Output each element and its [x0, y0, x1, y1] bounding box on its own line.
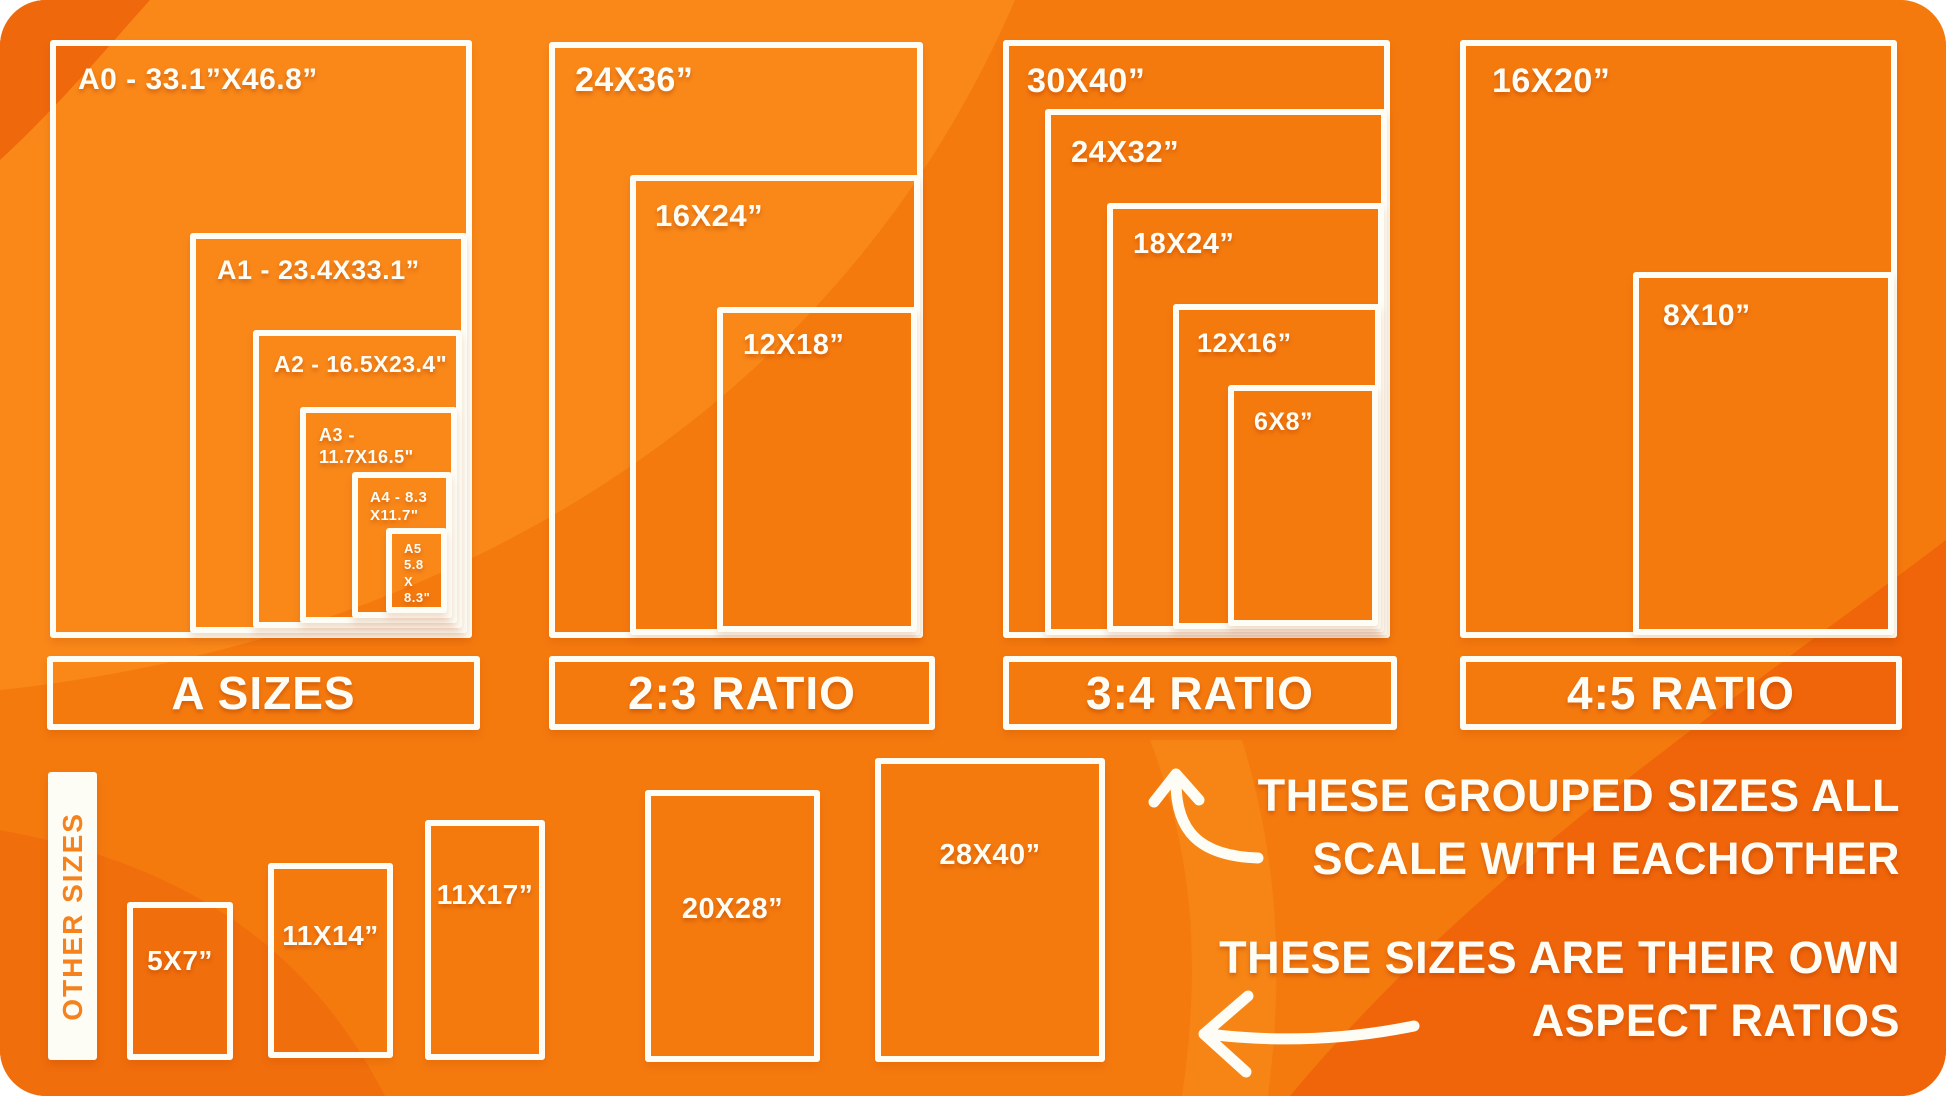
infographic-canvas: A0 - 33.1”X46.8” A1 - 23.4X33.1” A2 - 16… — [0, 0, 1946, 1096]
other-sizes-tab-text: OTHER SIZES — [57, 812, 89, 1021]
note-own-ratios: THESE SIZES ARE THEIR OWN ASPECT RATIOS — [1200, 926, 1900, 1052]
note-grouped-sizes-line2: SCALE WITH EACHOTHER — [1200, 827, 1900, 890]
size-box-8x10: 8X10” — [1633, 272, 1894, 635]
size-label-a3: A3 - 11.7X16.5" — [306, 413, 451, 469]
group-label-a-sizes-text: A SIZES — [171, 666, 355, 720]
group-label-4-5-ratio: 4:5 RATIO — [1460, 656, 1902, 730]
size-box-6x8: 6X8” — [1228, 385, 1378, 626]
size-label-8x10: 8X10” — [1639, 278, 1888, 335]
size-box-5x7: 5X7” — [127, 902, 233, 1060]
size-label-a0: A0 - 33.1”X46.8” — [56, 46, 466, 99]
group-label-3-4-ratio-text: 3:4 RATIO — [1086, 666, 1314, 720]
size-label-a4: A4 - 8.3 X11.7" — [358, 478, 446, 526]
size-label-30x40: 30X40” — [1009, 46, 1384, 102]
size-box-20x28: 20X28” — [645, 790, 820, 1062]
size-box-11x17: 11X17” — [425, 820, 545, 1060]
size-label-11x17: 11X17” — [437, 878, 533, 912]
group-label-3-4-ratio: 3:4 RATIO — [1003, 656, 1397, 730]
size-box-11x14: 11X14” — [268, 863, 393, 1058]
size-label-5x7: 5X7” — [147, 944, 213, 978]
size-label-11x14: 11X14” — [282, 919, 378, 953]
size-label-24x36: 24X36” — [555, 48, 917, 101]
note-own-ratios-line2: ASPECT RATIOS — [1200, 989, 1900, 1052]
size-box-12x18: 12X18” — [717, 307, 917, 632]
size-label-6x8: 6X8” — [1234, 391, 1372, 438]
size-label-a5: A5 5.8 X 8.3" — [392, 534, 441, 606]
size-box-a5: A5 5.8 X 8.3" — [386, 528, 447, 613]
size-label-16x24: 16X24” — [636, 181, 914, 235]
size-label-18x24: 18X24” — [1113, 209, 1378, 262]
group-label-2-3-ratio: 2:3 RATIO — [549, 656, 935, 730]
group-label-4-5-ratio-text: 4:5 RATIO — [1567, 666, 1795, 720]
group-label-a-sizes: A SIZES — [47, 656, 480, 730]
size-label-a1: A1 - 23.4X33.1” — [196, 239, 461, 287]
size-label-28x40: 28X40” — [939, 838, 1040, 873]
note-grouped-sizes: THESE GROUPED SIZES ALL SCALE WITH EACHO… — [1200, 764, 1900, 890]
size-label-a2: A2 - 16.5X23.4" — [259, 336, 456, 378]
note-grouped-sizes-line1: THESE GROUPED SIZES ALL — [1200, 764, 1900, 827]
size-label-12x16: 12X16” — [1179, 310, 1375, 360]
other-sizes-tab: OTHER SIZES — [48, 772, 97, 1060]
size-label-12x18: 12X18” — [723, 313, 911, 363]
size-label-20x28: 20X28” — [682, 892, 783, 927]
group-label-2-3-ratio-text: 2:3 RATIO — [628, 666, 856, 720]
size-label-24x32: 24X32” — [1051, 115, 1381, 171]
size-label-16x20: 16X20” — [1466, 46, 1891, 102]
note-own-ratios-line1: THESE SIZES ARE THEIR OWN — [1200, 926, 1900, 989]
size-box-28x40: 28X40” — [875, 758, 1105, 1062]
